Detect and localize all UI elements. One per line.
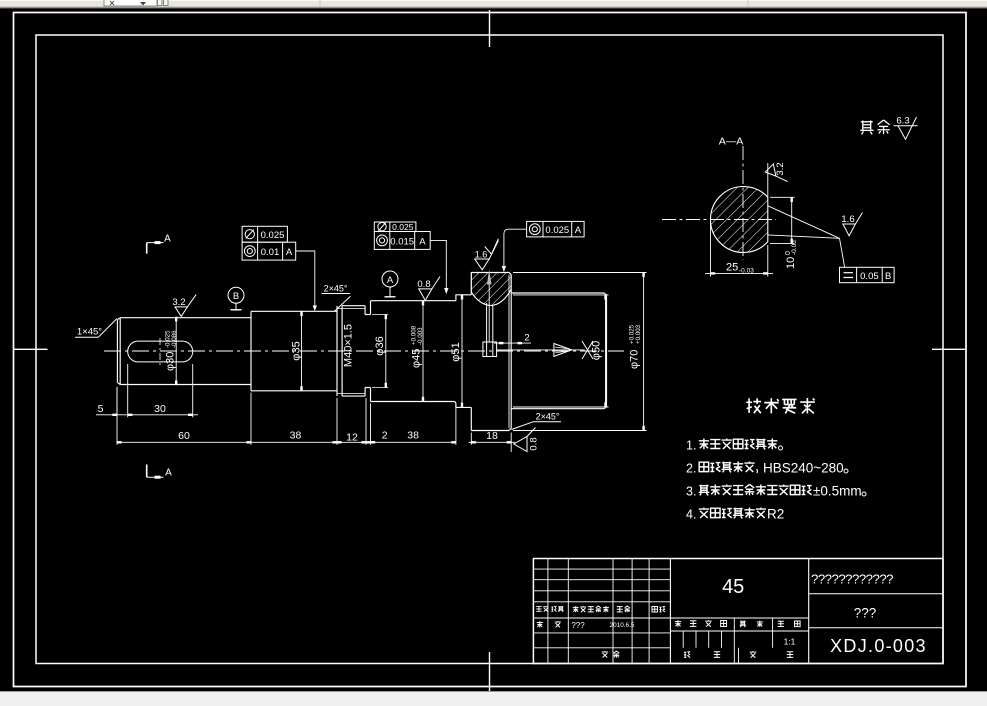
- svg-text:18: 18: [486, 430, 498, 442]
- svg-text:38: 38: [407, 430, 419, 442]
- svg-text:1.6: 1.6: [475, 250, 488, 260]
- svg-text:0.8: 0.8: [529, 437, 540, 450]
- svg-text:0.025: 0.025: [545, 225, 569, 236]
- svg-text:+0.003: +0.003: [635, 324, 642, 344]
- svg-text:-0.086: -0.086: [171, 330, 178, 348]
- svg-text:4.: 4.: [686, 508, 696, 522]
- svg-text:R2: R2: [767, 507, 784, 522]
- svg-text:45: 45: [722, 576, 744, 598]
- svg-text:-0.03: -0.03: [791, 240, 798, 255]
- svg-text:-0.003: -0.003: [417, 327, 424, 345]
- svg-text:25: 25: [726, 262, 738, 274]
- svg-text:-0.03: -0.03: [739, 268, 754, 275]
- svg-text:38: 38: [290, 430, 302, 442]
- svg-text:1.6: 1.6: [841, 214, 854, 225]
- svg-text:φ45: φ45: [411, 349, 423, 368]
- svg-text:1:1: 1:1: [784, 637, 796, 647]
- svg-text:10: 10: [785, 257, 797, 269]
- svg-text:B: B: [885, 271, 891, 282]
- svg-text:B: B: [233, 291, 239, 302]
- svg-text:0.015: 0.015: [390, 236, 414, 247]
- svg-text:A: A: [165, 468, 172, 479]
- svg-text:2.: 2.: [686, 462, 696, 476]
- svg-text:12: 12: [346, 432, 358, 444]
- svg-text:φ70: φ70: [629, 350, 641, 369]
- svg-text:HBS240~280: HBS240~280: [763, 461, 844, 476]
- svg-text:2: 2: [524, 333, 529, 344]
- svg-text:φ36: φ36: [374, 336, 386, 355]
- svg-text:M40×1.5: M40×1.5: [343, 324, 355, 367]
- svg-text:A: A: [387, 275, 394, 286]
- svg-text:2010.6.5: 2010.6.5: [610, 622, 635, 629]
- svg-text:3.2: 3.2: [775, 162, 786, 175]
- svg-text:0.8: 0.8: [417, 279, 430, 290]
- svg-text:0.05: 0.05: [860, 271, 879, 282]
- svg-text:60: 60: [178, 430, 190, 442]
- svg-text:???: ???: [571, 621, 585, 630]
- svg-text:A: A: [164, 234, 171, 245]
- svg-text:A: A: [286, 247, 293, 258]
- svg-text:±0.5mm: ±0.5mm: [813, 484, 862, 499]
- svg-text:2×45°: 2×45°: [536, 412, 560, 422]
- svg-text:0.025: 0.025: [261, 230, 285, 241]
- svg-text:????????????: ????????????: [811, 572, 893, 587]
- svg-text:A: A: [419, 236, 426, 247]
- svg-text:???: ???: [854, 606, 877, 621]
- svg-text:2: 2: [382, 430, 388, 442]
- svg-text:0.025: 0.025: [392, 222, 414, 232]
- svg-text:A: A: [575, 225, 582, 236]
- svg-text:30: 30: [154, 403, 166, 415]
- svg-text:6.3: 6.3: [896, 116, 909, 127]
- svg-text:1×45°: 1×45°: [77, 327, 102, 338]
- svg-text:φ35: φ35: [291, 341, 303, 360]
- svg-text:2×45°: 2×45°: [324, 284, 348, 294]
- svg-text:0.01: 0.01: [261, 247, 280, 258]
- svg-text:φ30: φ30: [165, 352, 177, 371]
- svg-text:5: 5: [98, 403, 104, 415]
- svg-text:XDJ.0-003: XDJ.0-003: [830, 636, 927, 656]
- svg-text:φ50: φ50: [591, 341, 603, 360]
- svg-text:0: 0: [785, 251, 792, 255]
- svg-text:3.: 3.: [686, 485, 696, 499]
- svg-text:φ51: φ51: [450, 342, 462, 361]
- svg-text:A—A: A—A: [719, 136, 744, 148]
- svg-text:3.2: 3.2: [172, 297, 185, 308]
- svg-text:1.: 1.: [686, 439, 696, 453]
